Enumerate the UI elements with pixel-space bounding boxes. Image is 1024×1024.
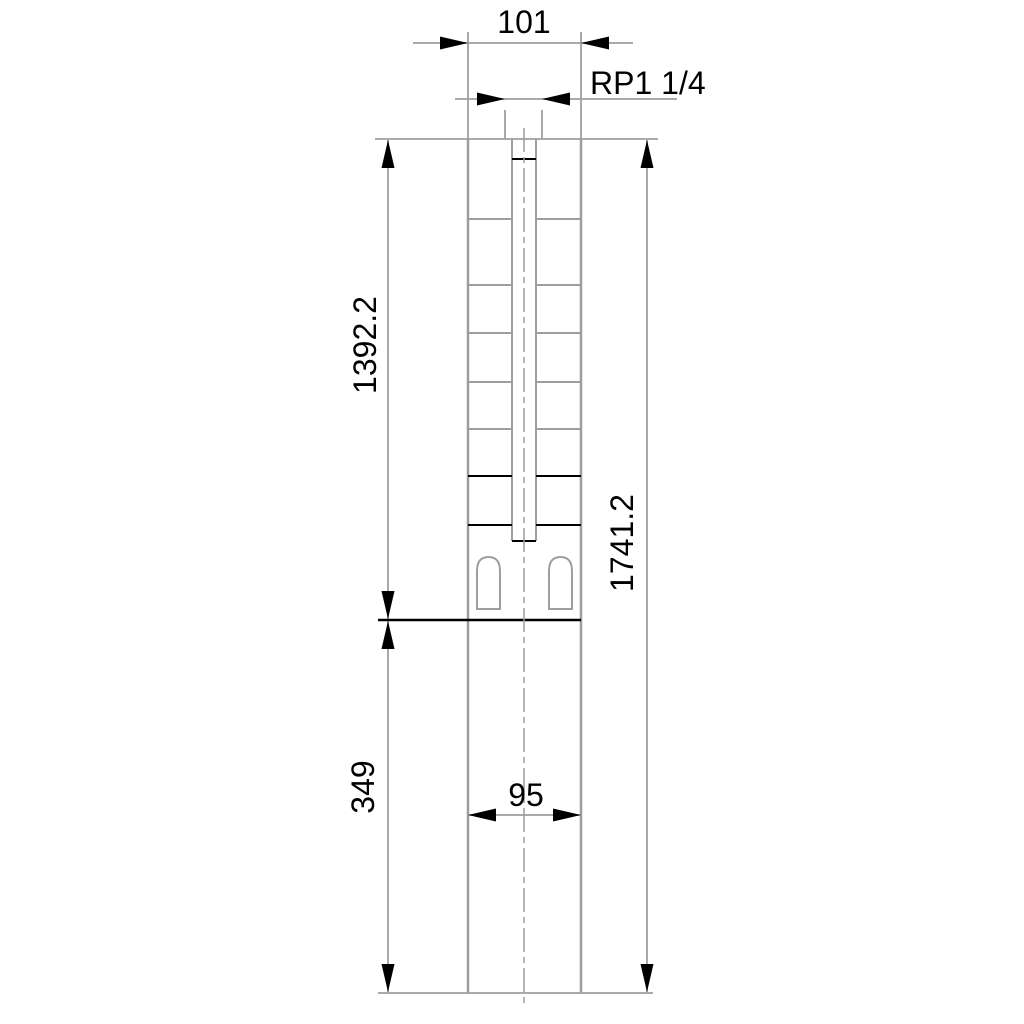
dimension-labels: 101 RP1 1/4 1392.2 1741.2 349 95 xyxy=(345,4,706,814)
arrow-thread-right-icon xyxy=(542,93,570,106)
arrow-top-width-right-icon xyxy=(581,37,609,50)
drawing-page: 101 RP1 1/4 1392.2 1741.2 349 95 xyxy=(0,0,1024,1024)
arrow-motor-length-bottom-icon xyxy=(382,964,395,992)
arrow-lower-width-left-icon xyxy=(468,809,496,822)
arrow-overall-length-bottom-icon xyxy=(641,964,654,992)
feature-lines xyxy=(378,159,581,620)
arrow-pump-length-top-icon xyxy=(382,140,395,168)
drawing-canvas: 101 RP1 1/4 1392.2 1741.2 349 95 xyxy=(0,0,1024,1024)
pump-section-length-label: 1392.2 xyxy=(347,296,383,394)
motor-section-length-label: 349 xyxy=(345,760,381,813)
arrow-lower-width-right-icon xyxy=(553,809,581,822)
arrow-thread-left-icon xyxy=(477,93,505,106)
cable-guard-slot-right xyxy=(549,557,572,609)
cable-guard-slot-left xyxy=(477,557,500,609)
top-width-label: 101 xyxy=(497,4,550,40)
arrow-top-width-left-icon xyxy=(440,37,468,50)
arrow-motor-length-top-icon xyxy=(382,621,395,649)
lower-width-label: 95 xyxy=(508,777,544,813)
arrow-pump-length-bottom-icon xyxy=(382,591,395,619)
arrow-overall-length-top-icon xyxy=(641,140,654,168)
thread-size-label: RP1 1/4 xyxy=(590,65,706,101)
overall-length-label: 1741.2 xyxy=(604,494,640,592)
